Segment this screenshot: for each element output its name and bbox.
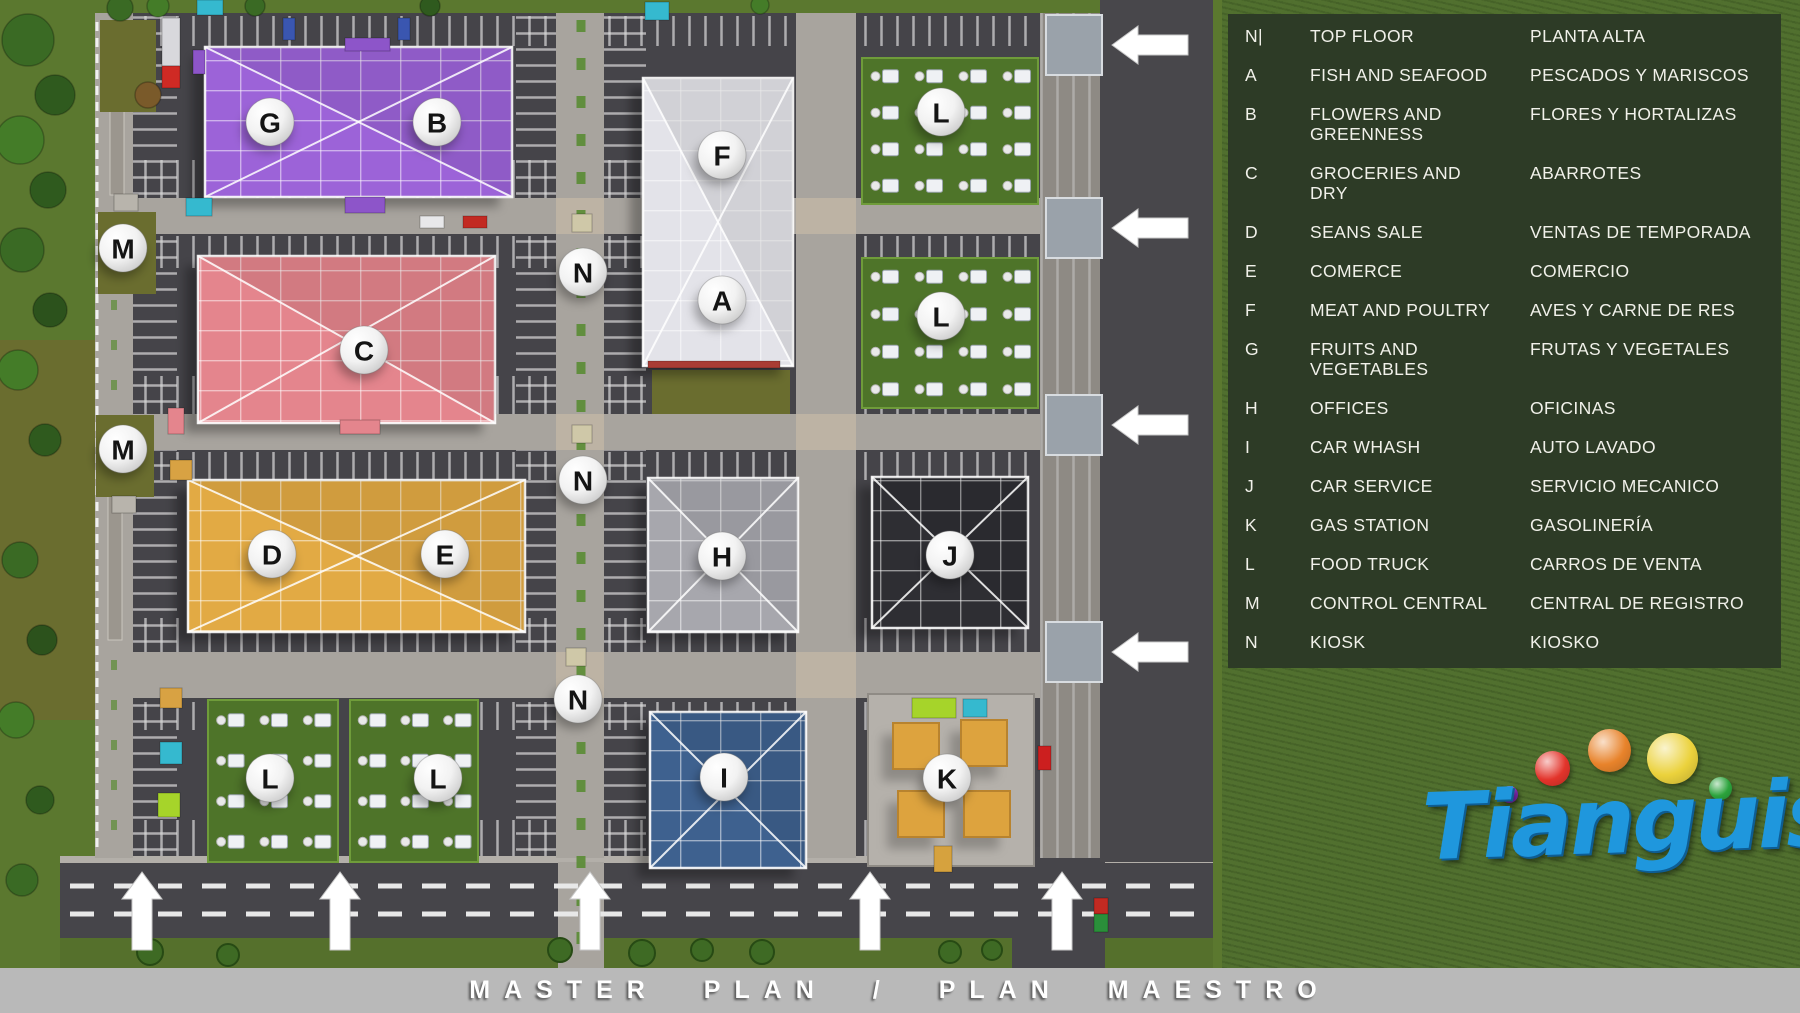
food-truck-icon <box>1015 308 1031 321</box>
svg-text:G: G <box>259 108 281 139</box>
svg-text:L: L <box>932 302 949 333</box>
svg-text:M: M <box>111 435 134 466</box>
pink-awning <box>168 408 184 434</box>
legend-code: G <box>1245 339 1310 379</box>
truck-table-icon <box>915 385 924 394</box>
truck-table-icon <box>217 756 226 765</box>
food-truck-icon <box>228 714 244 727</box>
palm-tree-icon <box>982 940 1002 960</box>
red-baseline <box>648 361 780 368</box>
truck-table-icon <box>1003 272 1012 281</box>
legend-label-es: CENTRAL DE REGISTRO <box>1530 593 1781 613</box>
food-truck-icon <box>971 345 987 358</box>
legend-code: D <box>1245 222 1310 242</box>
food-truck-icon <box>971 270 987 283</box>
teal-awning <box>645 2 669 20</box>
control-hut <box>114 194 138 211</box>
truck-table-icon <box>915 145 924 154</box>
food-truck-icon <box>315 835 331 848</box>
food-truck-icon <box>271 835 287 848</box>
legend-code: F <box>1245 300 1310 320</box>
truck-table-icon <box>260 716 269 725</box>
food-truck-icon <box>971 143 987 156</box>
legend-label-en: KIOSK <box>1310 632 1530 652</box>
tree-icon <box>0 116 44 164</box>
legend-label-en: GROCERIES AND DRY <box>1310 163 1530 203</box>
page-title: MASTER PLAN / PLAN MAESTRO <box>469 976 1330 1005</box>
truck-table-icon <box>915 72 924 81</box>
food-truck-icon <box>927 179 943 192</box>
legend-row: I CAR WHASH AUTO LAVADO <box>1245 437 1781 457</box>
legend-code: N <box>1245 632 1310 652</box>
legend-row: N KIOSK KIOSKO <box>1245 632 1781 652</box>
purple-awning <box>345 197 385 213</box>
truck-table-icon <box>401 837 410 846</box>
food-truck-icon <box>927 345 943 358</box>
legend-code: B <box>1245 104 1310 144</box>
food-truck-icon <box>228 754 244 767</box>
truck-table-icon <box>358 837 367 846</box>
entrance-gate <box>1046 198 1102 258</box>
truck-table-icon <box>915 181 924 190</box>
svg-text:L: L <box>429 764 446 795</box>
legend-label-en: OFFICES <box>1310 398 1530 418</box>
truck-table-icon <box>871 272 880 281</box>
food-truck-icon <box>455 795 471 808</box>
tree-icon <box>30 172 66 208</box>
food-truck-icon <box>883 345 899 358</box>
legend-row: M CONTROL CENTRAL CENTRAL DE REGISTRO <box>1245 593 1781 613</box>
legend-row: H OFFICES OFICINAS <box>1245 398 1781 418</box>
truck-table-icon <box>1003 385 1012 394</box>
food-truck-icon <box>971 308 987 321</box>
legend-label-es: GASOLINERÍA <box>1530 515 1781 535</box>
truck-table-icon <box>959 72 968 81</box>
legend-row: E COMERCE COMERCIO <box>1245 261 1781 281</box>
purple-awning <box>193 50 205 74</box>
food-truck-icon <box>927 143 943 156</box>
truck-table-icon <box>358 797 367 806</box>
teal-awning <box>197 0 223 15</box>
entrance-gate <box>1046 395 1102 455</box>
fuel-canopy-icon <box>961 720 1007 766</box>
truck-table-icon <box>1003 310 1012 319</box>
legend-code: A <box>1245 65 1310 85</box>
svg-text:L: L <box>932 98 949 129</box>
legend-label-es: ABARROTES <box>1530 163 1781 203</box>
food-truck-icon <box>1015 345 1031 358</box>
food-truck-icon <box>412 714 428 727</box>
lime-awning <box>158 793 180 817</box>
truck-table-icon <box>871 181 880 190</box>
legend-row: D SEANS SALE VENTAS DE TEMPORADA <box>1245 222 1781 242</box>
food-truck-icon <box>1015 179 1031 192</box>
legend-label-en: GAS STATION <box>1310 515 1530 535</box>
food-truck-icon <box>883 383 899 396</box>
legend-label-es: KIOSKO <box>1530 632 1781 652</box>
legend-label-es: COMERCIO <box>1530 261 1781 281</box>
food-truck-icon <box>228 835 244 848</box>
svg-text:K: K <box>937 764 957 795</box>
food-truck-icon <box>883 308 899 321</box>
legend-label-es: OFICINAS <box>1530 398 1781 418</box>
kiosk-hut <box>566 648 586 666</box>
food-truck-icon <box>315 714 331 727</box>
truck-table-icon <box>1003 145 1012 154</box>
pink-awning <box>340 420 380 434</box>
truck-table-icon <box>444 837 453 846</box>
palm-tree-icon <box>629 940 655 966</box>
truck-table-icon <box>959 181 968 190</box>
legend-label-en: CAR SERVICE <box>1310 476 1530 496</box>
svg-text:J: J <box>942 541 958 572</box>
svg-text:C: C <box>354 336 374 367</box>
tree-icon <box>0 702 34 738</box>
palm-tree-icon <box>217 944 239 966</box>
legend-row: G FRUITS AND VEGETABLES FRUTAS Y VEGETAL… <box>1245 339 1781 379</box>
palm-tree-icon <box>548 938 572 962</box>
svg-text:H: H <box>712 542 732 573</box>
title-bar: MASTER PLAN / PLAN MAESTRO <box>0 968 1800 1013</box>
legend-row: N| TOP FLOOR PLANTA ALTA <box>1245 26 1781 46</box>
truck-table-icon <box>401 756 410 765</box>
svg-text:M: M <box>111 234 134 265</box>
legend-row: B FLOWERS AND GREENNESS FLORES Y HORTALI… <box>1245 104 1781 144</box>
food-truck-icon <box>1015 270 1031 283</box>
building-D-E <box>175 480 525 642</box>
tree-icon <box>27 625 57 655</box>
svg-text:F: F <box>713 141 730 172</box>
kiosk-hut <box>572 214 592 232</box>
legend-label-en: CAR WHASH <box>1310 437 1530 457</box>
control-hut <box>112 496 136 513</box>
tree-icon <box>751 0 769 14</box>
food-truck-icon <box>1015 106 1031 119</box>
food-truck-icon <box>883 143 899 156</box>
tianguis-logo: Tianguis <box>1410 715 1800 925</box>
legend-label-en: FOOD TRUCK <box>1310 554 1530 574</box>
svg-text:A: A <box>712 286 732 317</box>
food-truck-icon <box>1015 383 1031 396</box>
truck-table-icon <box>358 756 367 765</box>
slide: GBFLMNALCMNDEHJNLLIK N| TOP FLOOR PLANTA… <box>0 0 1800 1013</box>
legend-code: C <box>1245 163 1310 203</box>
truck-table-icon <box>959 272 968 281</box>
legend-code: H <box>1245 398 1310 418</box>
legend-label-en: FLOWERS AND GREENNESS <box>1310 104 1530 144</box>
legend-panel: N| TOP FLOOR PLANTA ALTA A FISH AND SEAF… <box>1228 14 1781 668</box>
truck-table-icon <box>401 716 410 725</box>
food-truck-icon <box>315 754 331 767</box>
logo-wordmark: Tianguis <box>1420 760 1800 881</box>
car <box>398 18 410 40</box>
truck-table-icon <box>303 797 312 806</box>
food-truck-icon <box>971 179 987 192</box>
legend-label-en: CONTROL CENTRAL <box>1310 593 1530 613</box>
truck-table-icon <box>915 347 924 356</box>
lime-canopy <box>912 698 956 718</box>
food-truck-icon <box>315 795 331 808</box>
legend-code: N| <box>1245 26 1310 46</box>
tree-icon <box>29 424 61 456</box>
tree-icon <box>2 542 38 578</box>
legend-label-en: FRUITS AND VEGETABLES <box>1310 339 1530 379</box>
legend-code: E <box>1245 261 1310 281</box>
palm-tree-icon <box>939 941 961 963</box>
legend-row: K GAS STATION GASOLINERÍA <box>1245 515 1781 535</box>
truck-table-icon <box>871 72 880 81</box>
car <box>420 216 444 228</box>
food-truck-icon <box>455 714 471 727</box>
truck-table-icon <box>358 716 367 725</box>
truck-table-icon <box>217 797 226 806</box>
food-truck-icon <box>883 270 899 283</box>
legend-label-es: AVES Y CARNE DE RES <box>1530 300 1781 320</box>
food-truck-icon <box>271 714 287 727</box>
tree-icon <box>0 228 44 272</box>
orange-awning <box>170 460 192 480</box>
truck-table-icon <box>1003 181 1012 190</box>
truck-table-icon <box>444 716 453 725</box>
truck-table-icon <box>303 837 312 846</box>
tree-icon <box>6 864 38 896</box>
svg-text:N: N <box>568 685 588 716</box>
truck-table-icon <box>915 272 924 281</box>
food-truck-icon <box>927 70 943 83</box>
svg-text:N: N <box>573 466 593 497</box>
legend-row: L FOOD TRUCK CARROS DE VENTA <box>1245 554 1781 574</box>
building-F-A <box>630 78 793 376</box>
legend-label-es: FLORES Y HORTALIZAS <box>1530 104 1781 144</box>
truck-table-icon <box>871 385 880 394</box>
food-truck-icon <box>927 270 943 283</box>
legend-code: M <box>1245 593 1310 613</box>
truck-table-icon <box>959 347 968 356</box>
truck-table-icon <box>871 347 880 356</box>
olive-grass-strip <box>0 340 95 720</box>
legend-row: F MEAT AND POULTRY AVES Y CARNE DE RES <box>1245 300 1781 320</box>
truck-table-icon <box>401 797 410 806</box>
food-truck-icon <box>228 795 244 808</box>
food-truck-icon <box>455 835 471 848</box>
svg-text:E: E <box>436 540 455 571</box>
fuel-canopy-icon <box>964 791 1010 837</box>
palm-tree-icon <box>750 940 774 964</box>
legend-code: K <box>1245 515 1310 535</box>
tree-icon <box>35 75 75 115</box>
entrance-gate <box>1046 622 1102 682</box>
service-truck <box>934 846 952 872</box>
truck-table-icon <box>959 385 968 394</box>
kiosk-hut <box>572 425 592 443</box>
entrance-gate <box>1046 15 1102 75</box>
tree-icon <box>420 0 440 16</box>
teal-awning <box>186 198 212 216</box>
tree-icon <box>0 350 38 390</box>
food-truck-icon <box>370 835 386 848</box>
truck-table-icon <box>871 145 880 154</box>
purple-awning <box>345 38 390 51</box>
legend-code: L <box>1245 554 1310 574</box>
truck-table-icon <box>260 837 269 846</box>
food-truck-icon <box>412 835 428 848</box>
legend-label-es: AUTO LAVADO <box>1530 437 1781 457</box>
truck-table-icon <box>303 756 312 765</box>
food-truck-icon <box>971 106 987 119</box>
food-truck-icon <box>971 70 987 83</box>
food-truck-icon <box>971 383 987 396</box>
cyan-canopy <box>963 699 987 717</box>
car <box>283 18 295 40</box>
food-truck-icon <box>883 179 899 192</box>
tree-icon <box>135 82 161 108</box>
legend-label-en: TOP FLOOR <box>1310 26 1530 46</box>
legend-row: C GROCERIES AND DRY ABARROTES <box>1245 163 1781 203</box>
building-C <box>185 256 495 433</box>
svg-text:I: I <box>720 763 728 794</box>
legend-label-es: FRUTAS Y VEGETALES <box>1530 339 1781 379</box>
legend-label-en: FISH AND SEAFOOD <box>1310 65 1530 85</box>
tree-icon <box>147 0 169 17</box>
truck-table-icon <box>303 716 312 725</box>
truck-red <box>1094 898 1108 914</box>
truck-table-icon <box>217 837 226 846</box>
tree-icon <box>33 293 67 327</box>
truck-table-icon <box>1003 347 1012 356</box>
truck-table-icon <box>217 716 226 725</box>
tree-icon <box>107 0 133 21</box>
food-truck-icon <box>883 106 899 119</box>
svg-text:D: D <box>262 540 282 571</box>
truck-green <box>1094 914 1108 932</box>
truck-table-icon <box>1003 72 1012 81</box>
legend-label-es: CARROS DE VENTA <box>1530 554 1781 574</box>
tree-icon <box>26 786 54 814</box>
legend-code: I <box>1245 437 1310 457</box>
legend-label-es: SERVICIO MECANICO <box>1530 476 1781 496</box>
truck-table-icon <box>959 145 968 154</box>
site-plan-map: GBFLMNALCMNDEHJNLLIK <box>0 0 1222 968</box>
legend-code: J <box>1245 476 1310 496</box>
tree-icon <box>2 14 54 66</box>
food-truck-icon <box>370 714 386 727</box>
building-G-B <box>192 47 512 207</box>
svg-text:N: N <box>573 258 593 289</box>
food-truck-icon <box>370 754 386 767</box>
delivery-truck-trailer <box>162 18 180 66</box>
food-truck-icon <box>883 70 899 83</box>
car <box>1038 746 1051 770</box>
food-truck-icon <box>927 383 943 396</box>
svg-text:L: L <box>261 764 278 795</box>
palm-tree-icon <box>691 939 713 961</box>
truck-table-icon <box>871 108 880 117</box>
logo-orange-dot-icon <box>1588 729 1631 772</box>
legend-label-es: PESCADOS Y MARISCOS <box>1530 65 1781 85</box>
olive-patch <box>652 370 790 414</box>
teal-awning <box>160 742 182 764</box>
delivery-truck-cab <box>162 66 180 88</box>
food-truck-icon <box>370 795 386 808</box>
legend-label-en: COMERCE <box>1310 261 1530 281</box>
legend-row: J CAR SERVICE SERVICIO MECANICO <box>1245 476 1781 496</box>
legend-label-en: MEAT AND POULTRY <box>1310 300 1530 320</box>
truck-table-icon <box>871 310 880 319</box>
tree-icon <box>245 0 265 16</box>
legend-label-es: VENTAS DE TEMPORADA <box>1530 222 1781 242</box>
legend-label-es: PLANTA ALTA <box>1530 26 1781 46</box>
legend-row: A FISH AND SEAFOOD PESCADOS Y MARISCOS <box>1245 65 1781 85</box>
food-truck-icon <box>1015 70 1031 83</box>
food-truck-icon <box>1015 143 1031 156</box>
legend-label-en: SEANS SALE <box>1310 222 1530 242</box>
orange-awning <box>160 688 182 708</box>
truck-table-icon <box>1003 108 1012 117</box>
car <box>463 216 487 228</box>
svg-text:B: B <box>427 108 447 139</box>
